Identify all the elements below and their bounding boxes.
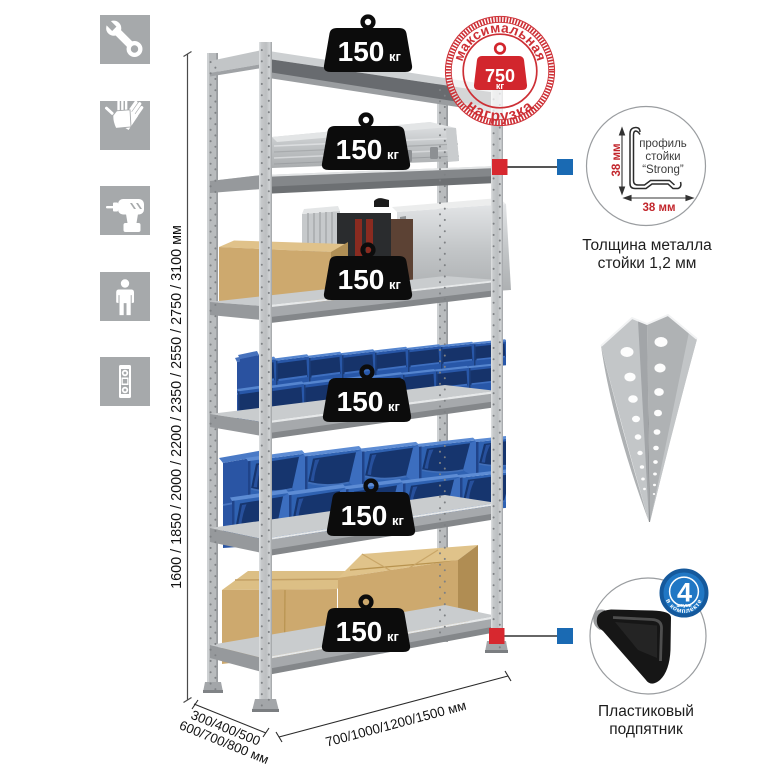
svg-text:кг: кг	[496, 81, 505, 91]
svg-text:Толщина металла: Толщина металла	[582, 237, 712, 254]
svg-text:38 мм: 38 мм	[642, 202, 675, 214]
svg-text:стойки: стойки	[645, 151, 680, 163]
svg-text:Пластиковый: Пластиковый	[598, 703, 694, 720]
svg-text:подпятник: подпятник	[609, 721, 683, 738]
svg-text:“Strong”: “Strong”	[642, 164, 684, 176]
svg-text:1600 / 1850 / 2000 / 2200 / 23: 1600 / 1850 / 2000 / 2200 / 2350 / 2550 …	[169, 225, 185, 589]
svg-text:профиль: профиль	[639, 138, 687, 150]
svg-text:38 мм: 38 мм	[611, 143, 623, 176]
svg-text:стойки 1,2 мм: стойки 1,2 мм	[598, 255, 697, 272]
